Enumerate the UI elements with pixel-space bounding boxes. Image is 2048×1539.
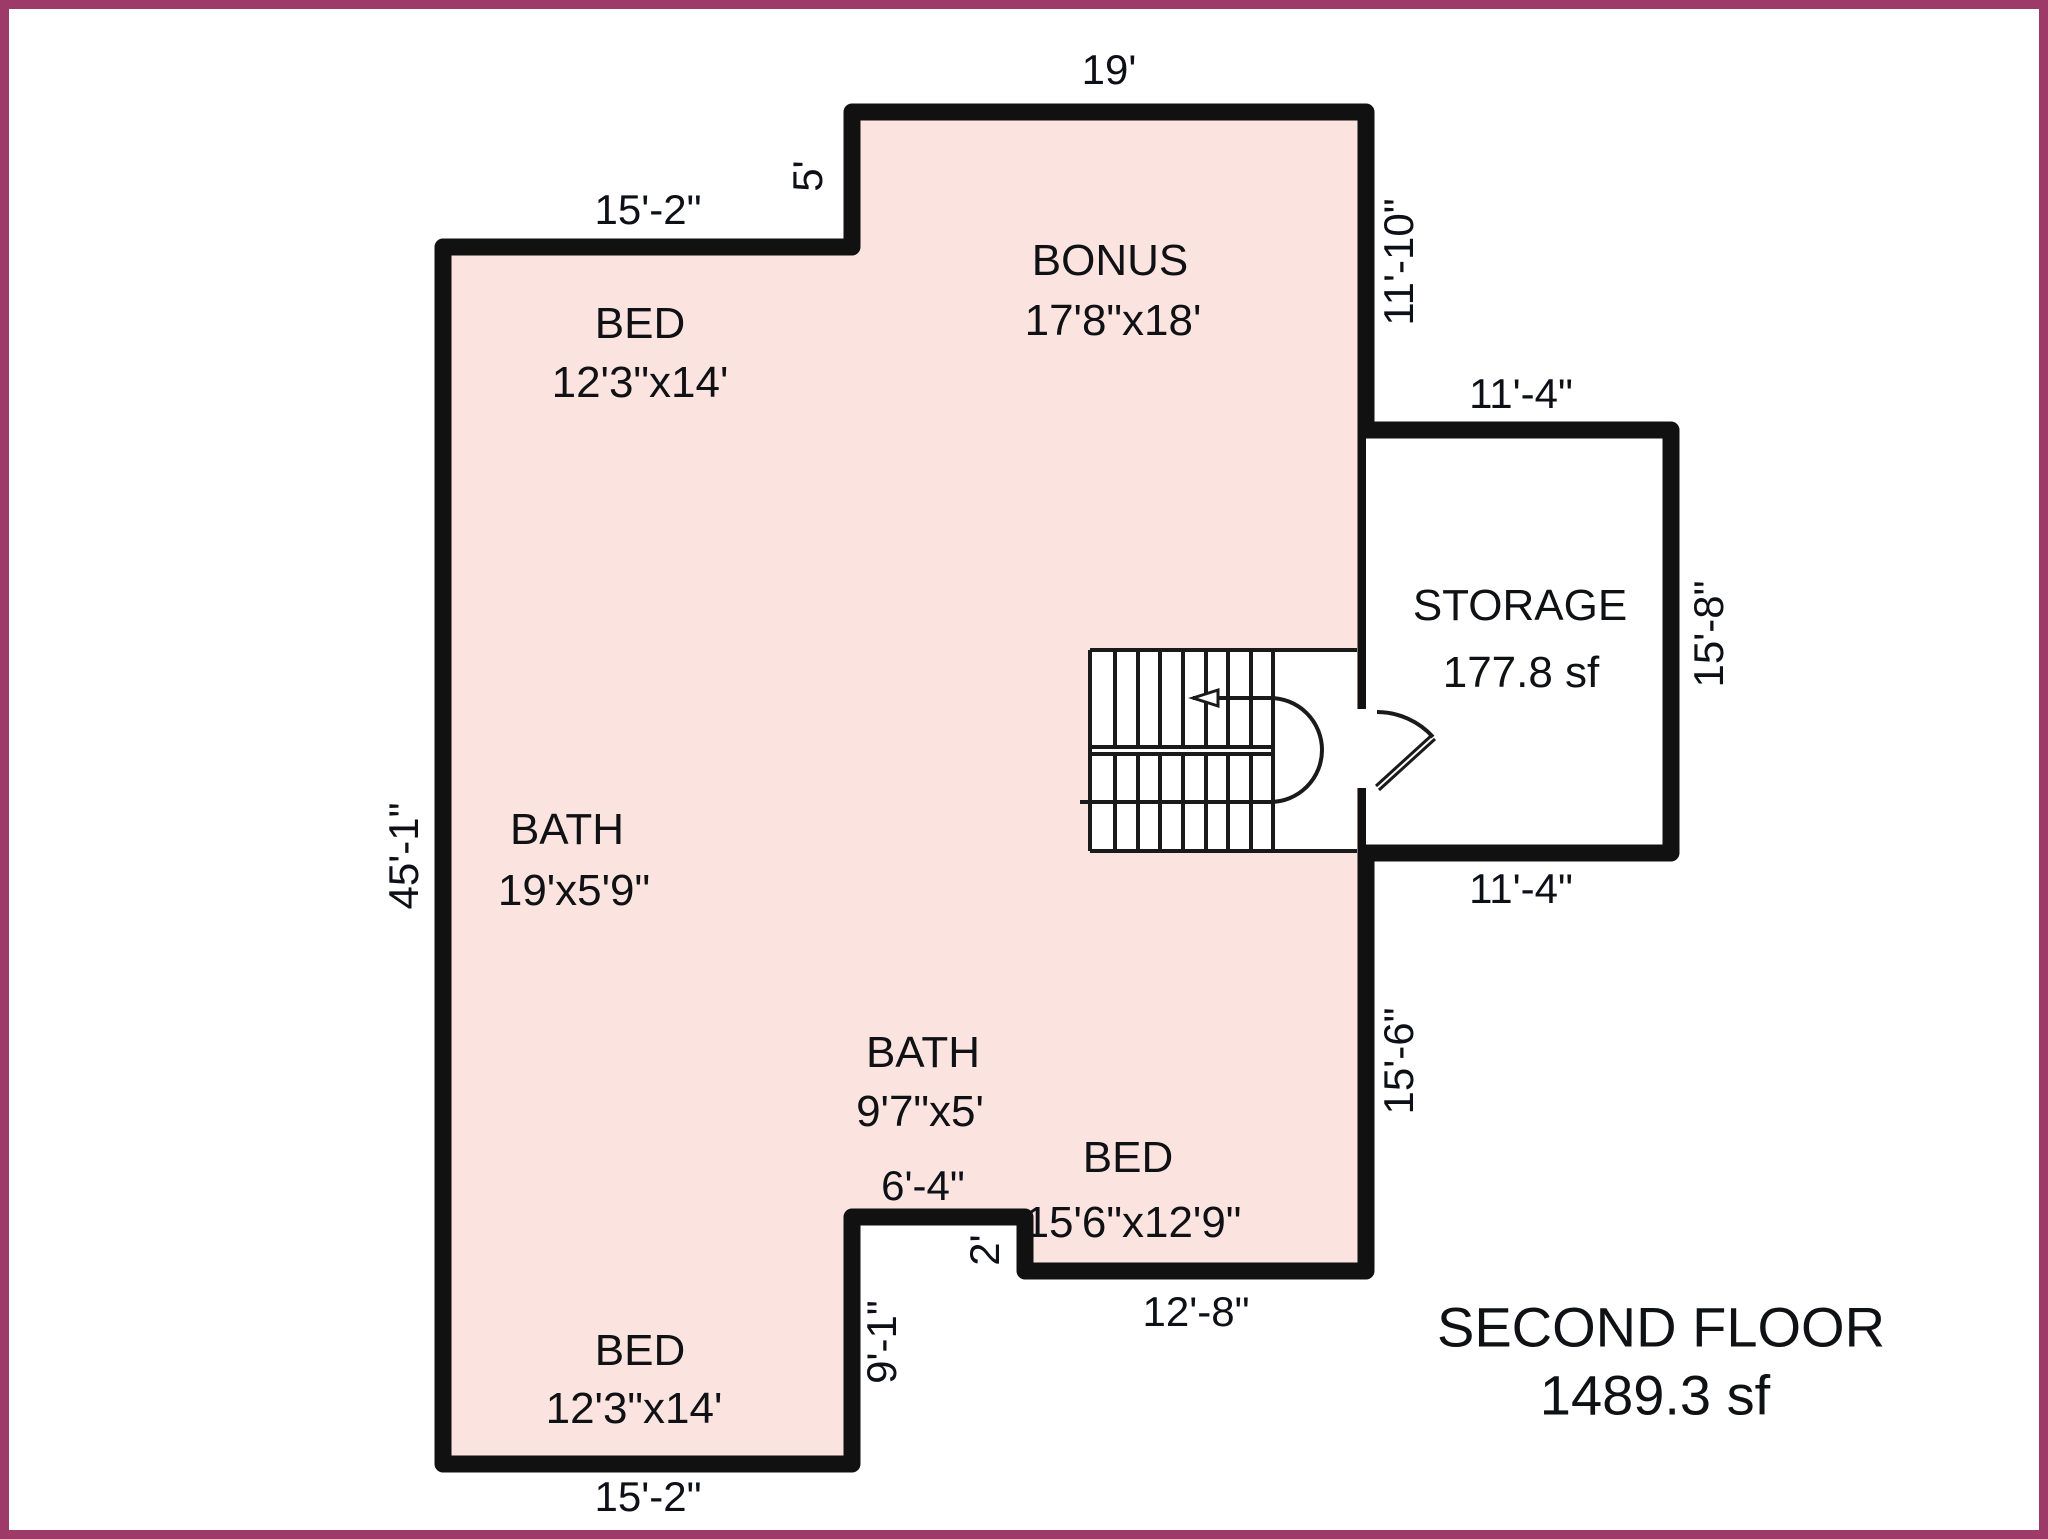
dimension-step-left: 5' [784, 160, 832, 191]
room-dims-bonus: 17'8"x18' [1025, 296, 1202, 346]
plan-area: 1489.3 sf [1540, 1363, 1770, 1428]
floor-plan-page: 19' 15'-2" 5' 11'-10" 11'-4" 15'-8" 11'-… [0, 0, 2048, 1539]
room-dims-bed-top-left: 12'3"x14' [552, 358, 729, 408]
door-opening [1354, 709, 1378, 788]
room-dims-bath-small: 9'7"x5' [856, 1087, 984, 1137]
room-name-bed-top-left: BED [595, 299, 685, 349]
dimension-bottom-left-width: 15'-2" [595, 1473, 702, 1521]
dimension-notch-step: 2' [961, 1234, 1009, 1265]
room-dims-bed-bottom-right: 15'6"x12'9" [1025, 1198, 1242, 1248]
dimension-bonus-right: 11'-10" [1375, 198, 1423, 325]
room-name-bonus: BONUS [1032, 236, 1188, 286]
dimension-storage-bottom: 11'-4" [1469, 865, 1573, 913]
plan-title: SECOND FLOOR [1437, 1295, 1885, 1360]
dimension-notch-top: 6'-4" [881, 1162, 965, 1210]
room-name-storage: STORAGE [1413, 581, 1627, 631]
dimension-storage-top: 11'-4" [1469, 370, 1573, 418]
room-dims-bath-main: 19'x5'9" [498, 866, 650, 916]
room-name-bath-main: BATH [510, 805, 624, 855]
staircase-floor [1090, 650, 1357, 851]
dimension-storage-right: 15'-8" [1685, 581, 1733, 688]
room-dims-storage: 177.8 sf [1443, 648, 1600, 698]
dimension-top-left-width: 15'-2" [595, 186, 702, 234]
dimension-bed-bottom-width: 12'-8" [1143, 1288, 1250, 1336]
room-name-bath-small: BATH [866, 1028, 980, 1078]
room-name-bed-bottom-left: BED [595, 1326, 685, 1376]
dimension-left-height: 45'-1" [380, 803, 428, 910]
dimension-notch-right: 9'-1" [858, 1300, 906, 1384]
room-name-bed-bottom-right: BED [1083, 1133, 1173, 1183]
room-dims-bed-bottom-left: 12'3"x14' [546, 1384, 723, 1434]
dimension-right-lower: 15'-6" [1375, 1008, 1423, 1115]
storage-room-floor [1366, 430, 1671, 853]
dimension-bonus-top: 19' [1082, 46, 1137, 94]
